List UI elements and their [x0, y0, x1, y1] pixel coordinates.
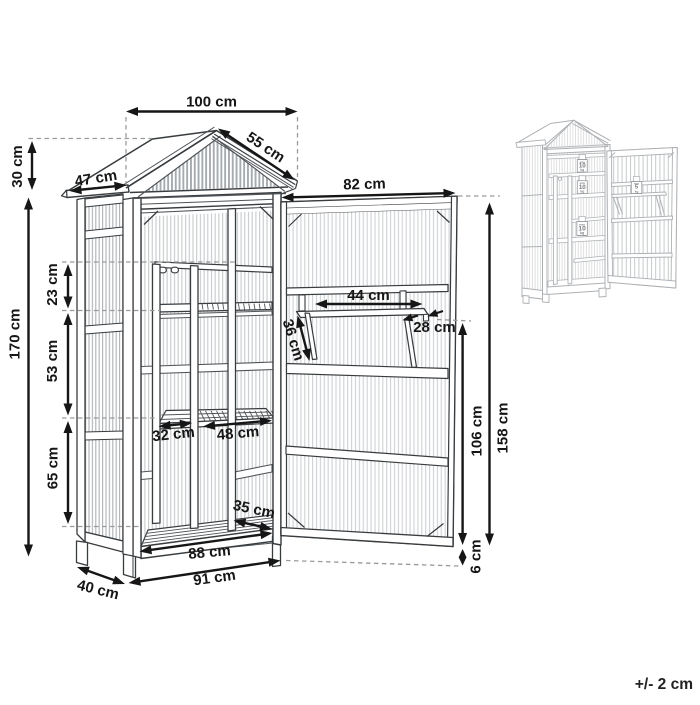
svg-text:kg: kg	[580, 189, 584, 193]
svg-text:100 cm: 100 cm	[186, 94, 237, 111]
svg-text:30 cm: 30 cm	[9, 145, 26, 188]
svg-text:+/- 2 cm: +/- 2 cm	[635, 676, 693, 693]
svg-text:158 cm: 158 cm	[495, 403, 512, 454]
svg-text:kg: kg	[580, 231, 584, 235]
svg-text:23 cm: 23 cm	[44, 263, 61, 306]
svg-text:44 cm: 44 cm	[347, 287, 390, 304]
svg-text:6 cm: 6 cm	[468, 539, 485, 573]
svg-text:kg: kg	[580, 168, 584, 172]
svg-text:170 cm: 170 cm	[7, 309, 24, 360]
svg-text:53 cm: 53 cm	[44, 340, 61, 383]
svg-text:28 cm: 28 cm	[413, 319, 456, 336]
svg-text:kg: kg	[635, 189, 639, 193]
svg-text:106 cm: 106 cm	[469, 406, 486, 457]
svg-text:82 cm: 82 cm	[343, 175, 386, 193]
svg-text:65 cm: 65 cm	[45, 447, 62, 490]
